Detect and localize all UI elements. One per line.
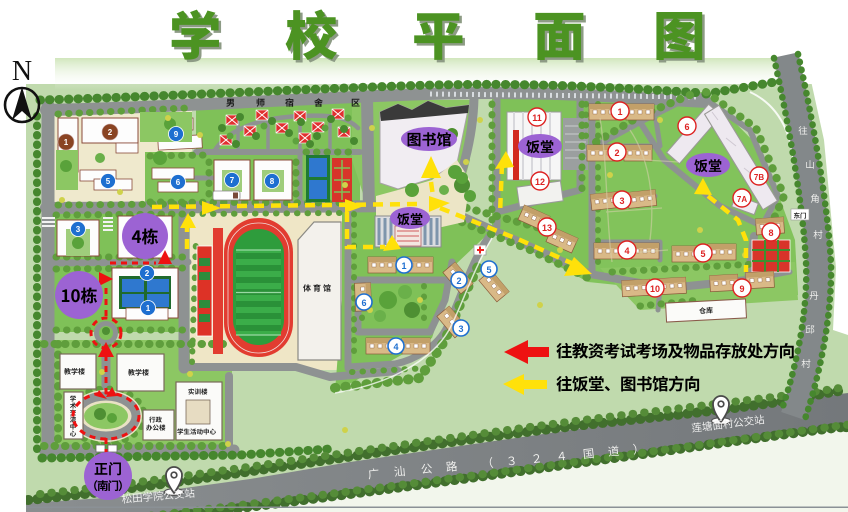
svg-text:11: 11 xyxy=(532,113,542,123)
svg-text:5: 5 xyxy=(486,265,491,275)
svg-text:1: 1 xyxy=(64,138,69,147)
svg-text:5: 5 xyxy=(106,177,111,186)
svg-text:3: 3 xyxy=(458,324,463,334)
svg-text:9: 9 xyxy=(174,130,179,139)
svg-text:4: 4 xyxy=(624,246,629,256)
svg-text:6: 6 xyxy=(361,298,366,308)
svg-text:4: 4 xyxy=(393,342,398,352)
svg-text:5: 5 xyxy=(700,249,705,259)
svg-text:8: 8 xyxy=(270,177,275,186)
svg-text:2: 2 xyxy=(108,128,113,137)
svg-text:6: 6 xyxy=(684,122,689,132)
svg-text:2: 2 xyxy=(456,276,461,286)
svg-text:13: 13 xyxy=(542,223,552,233)
svg-text:1: 1 xyxy=(146,304,151,313)
svg-text:10: 10 xyxy=(650,284,660,294)
svg-text:6: 6 xyxy=(176,178,181,187)
svg-text:7B: 7B xyxy=(754,173,764,182)
svg-text:2: 2 xyxy=(145,269,150,278)
svg-text:N: N xyxy=(12,56,32,87)
svg-text:12: 12 xyxy=(535,177,545,187)
svg-text:9: 9 xyxy=(739,284,744,294)
svg-text:7: 7 xyxy=(230,176,235,185)
svg-text:7A: 7A xyxy=(737,195,747,204)
svg-text:3: 3 xyxy=(76,225,81,234)
svg-text:8: 8 xyxy=(768,228,773,238)
svg-text:2: 2 xyxy=(614,148,619,158)
svg-text:1: 1 xyxy=(401,261,406,271)
svg-text:3: 3 xyxy=(619,196,624,206)
svg-text:1: 1 xyxy=(617,107,622,117)
